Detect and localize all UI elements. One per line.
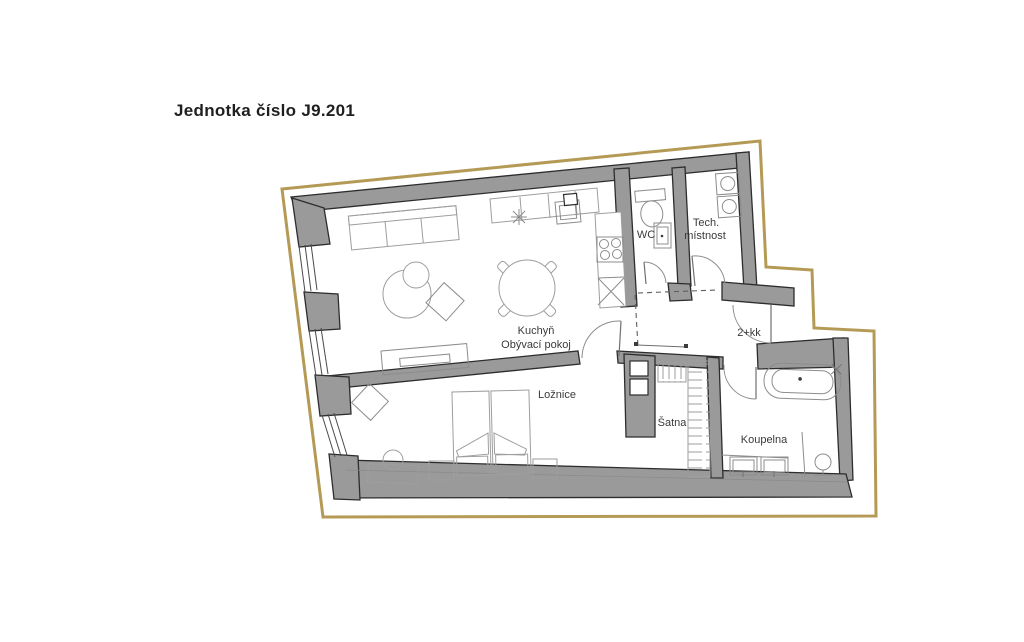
label-bedroom: Ložnice — [538, 389, 576, 401]
label-unit-type: 2+kk — [737, 327, 761, 339]
wall-corner-sw — [329, 454, 360, 500]
label-kitchen: Kuchyň — [518, 325, 555, 337]
wall-stub-wc-tech — [668, 283, 692, 301]
label-closet: Šatna — [658, 416, 688, 429]
label-wc: WC — [637, 229, 655, 241]
dining-table — [499, 260, 555, 316]
label-tech-room-line2: místnost — [684, 230, 726, 242]
label-living-room: Obývací pokoj — [501, 339, 571, 351]
label-tech-room-line1: Tech. — [693, 217, 719, 229]
cooktop-symbol — [511, 209, 527, 225]
floor-plan-page: Jednotka číslo J9.201 — [0, 0, 1024, 642]
wc-washbasin — [654, 223, 671, 248]
wall-vent-box — [564, 193, 578, 205]
pouf-small — [403, 262, 429, 288]
wall-pier-west2 — [315, 375, 351, 416]
label-bathroom: Koupelna — [741, 434, 788, 446]
floor-plan-canvas: Kuchyň Obývací pokoj WC Tech. místnost 2… — [0, 0, 1024, 642]
wall-pier-west — [304, 292, 340, 331]
